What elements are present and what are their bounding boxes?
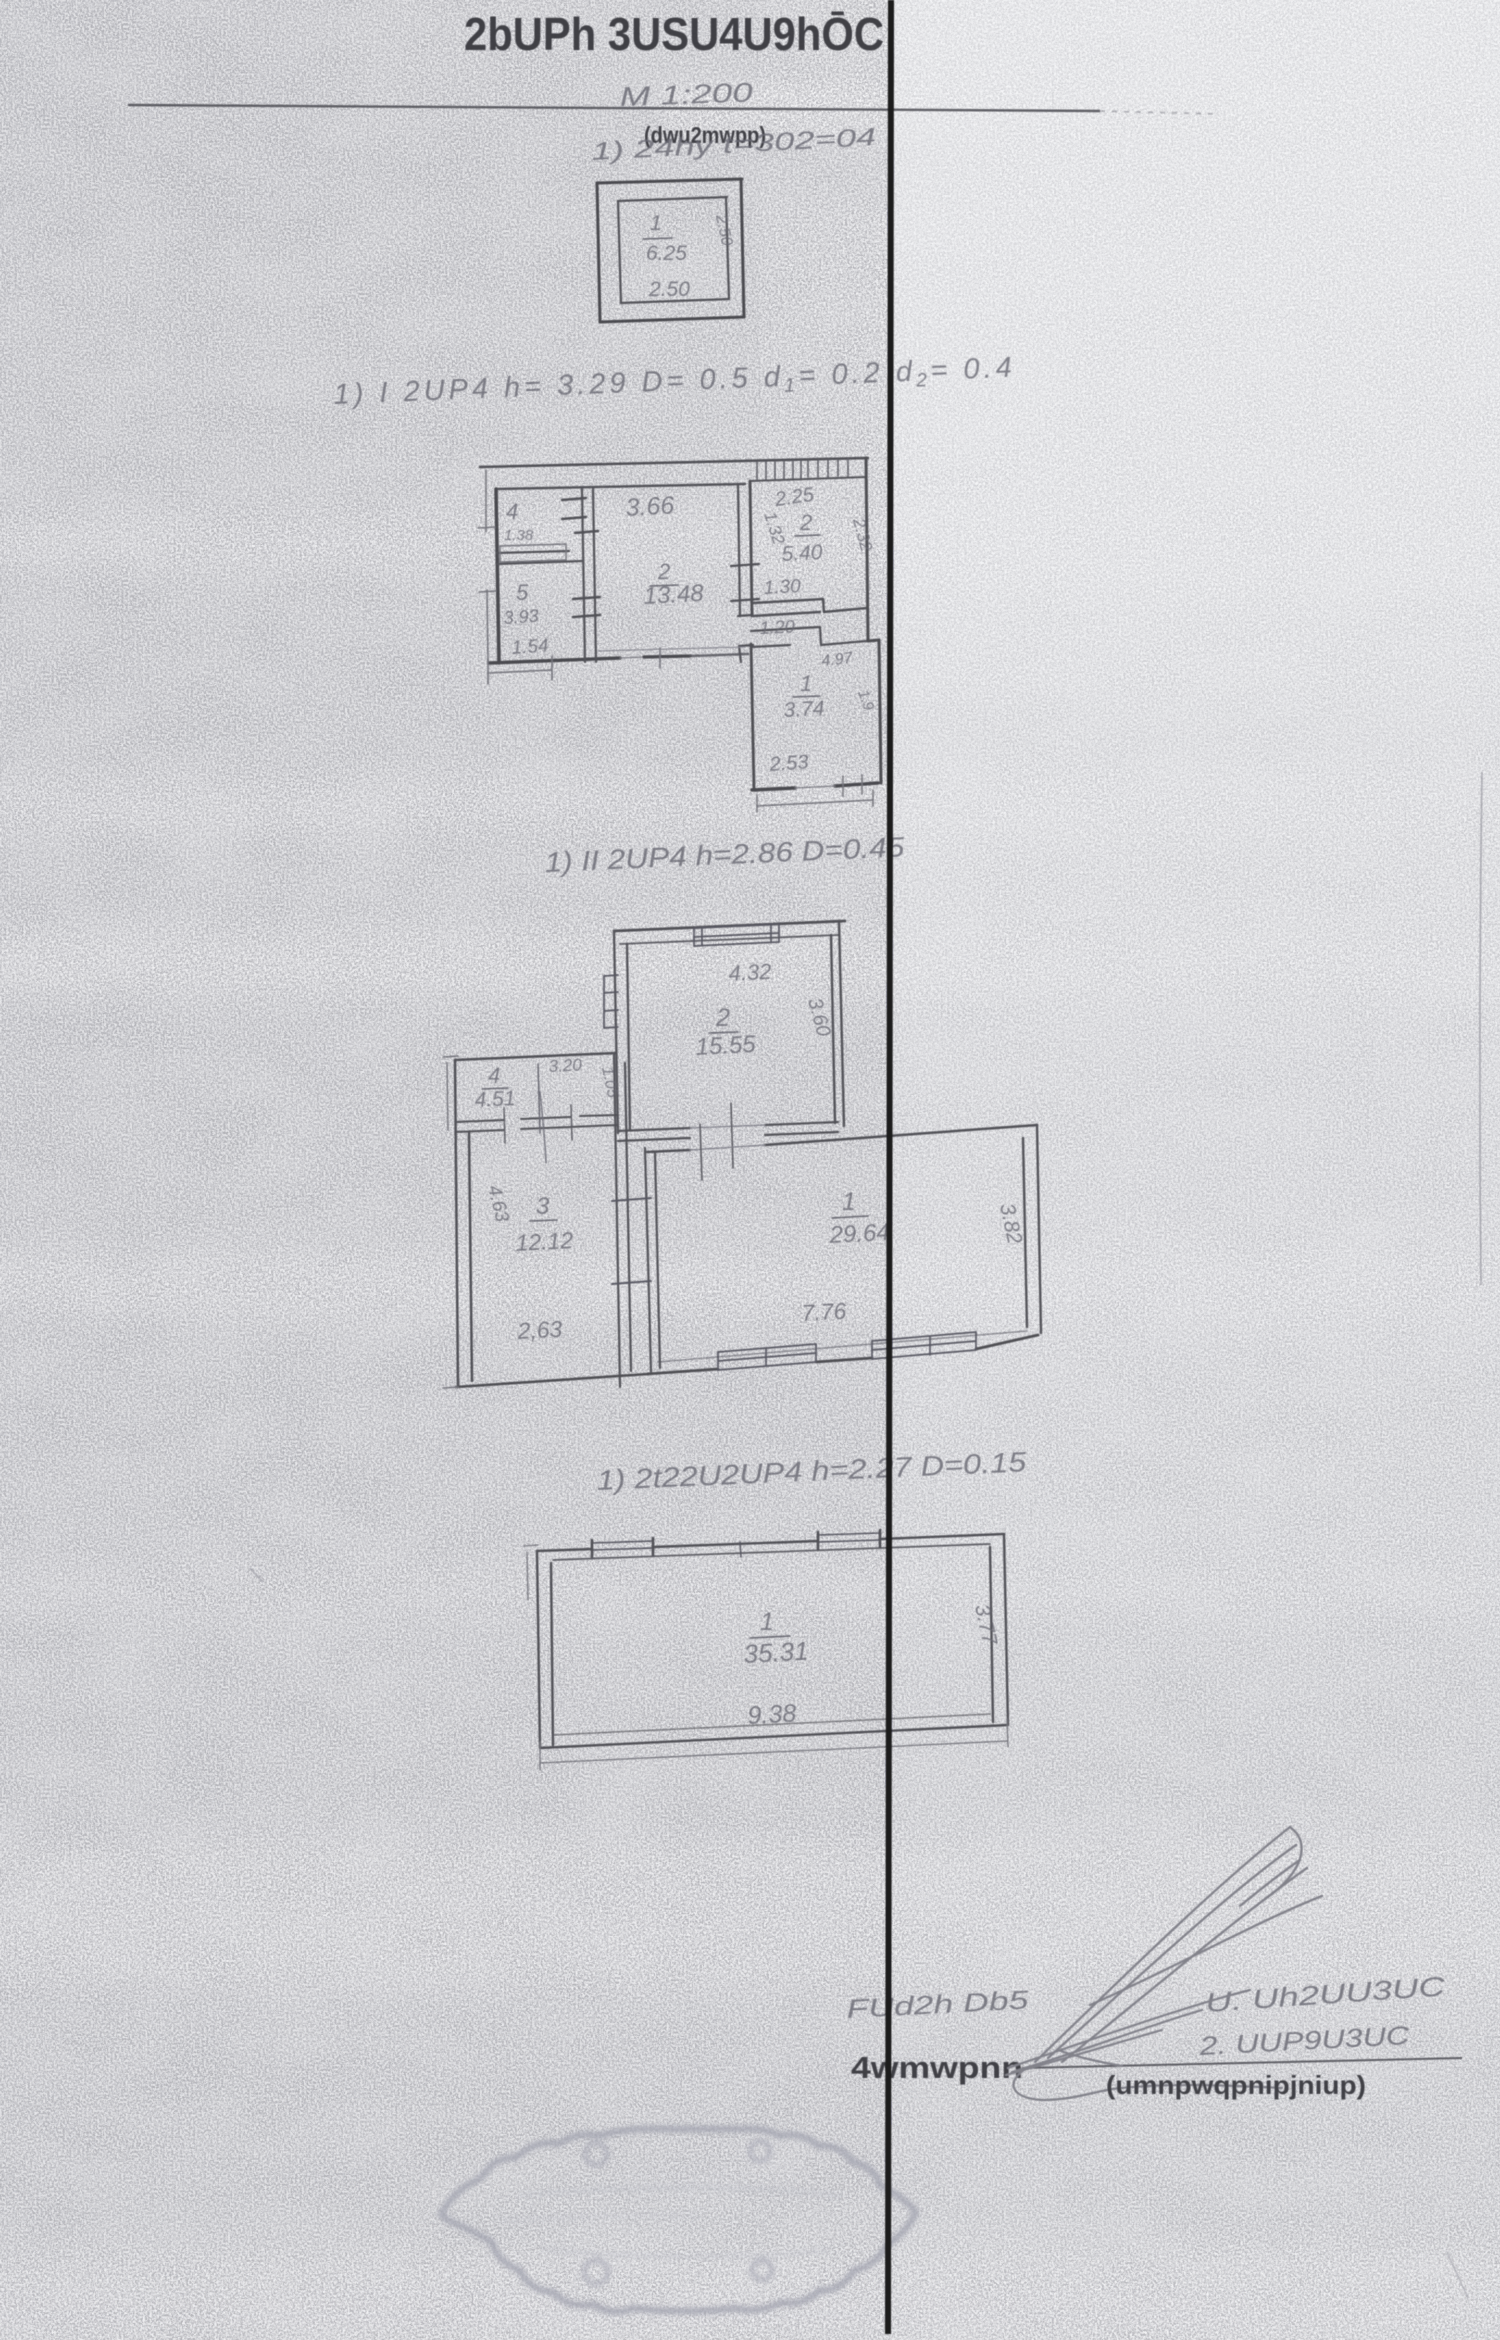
svg-text:1.38: 1.38 xyxy=(504,527,534,544)
svg-text:4wmwpnn: 4wmwpnn xyxy=(851,2050,1023,2085)
svg-text:35.31: 35.31 xyxy=(743,1636,810,1669)
svg-text:1: 1 xyxy=(842,1188,856,1216)
svg-text:3.20: 3.20 xyxy=(548,1055,583,1076)
svg-text:2.53: 2.53 xyxy=(768,751,809,776)
svg-text:(umnpwqpnipjniup): (umnpwqpnipjniup) xyxy=(1106,2070,1366,2100)
svg-text:2,63: 2,63 xyxy=(516,1316,563,1344)
svg-text:12.12: 12.12 xyxy=(515,1227,574,1256)
svg-text:29.64: 29.64 xyxy=(828,1219,890,1249)
svg-text:1.54: 1.54 xyxy=(511,635,549,659)
svg-text:1.30: 1.30 xyxy=(763,576,801,599)
svg-text:2: 2 xyxy=(657,559,670,584)
svg-text:4: 4 xyxy=(488,1063,500,1088)
svg-text:M 1:200: M 1:200 xyxy=(619,77,753,112)
svg-text:1: 1 xyxy=(650,212,662,235)
svg-text:9.38: 9.38 xyxy=(747,1699,797,1730)
svg-text:4.32: 4.32 xyxy=(728,959,772,986)
svg-text:3: 3 xyxy=(536,1193,550,1220)
svg-text:4.51: 4.51 xyxy=(474,1087,516,1112)
svg-text:1: 1 xyxy=(800,671,812,696)
svg-text:3.74: 3.74 xyxy=(783,697,825,722)
svg-text:2: 2 xyxy=(715,1004,730,1032)
svg-text:2bUPh 3USU4U9hŌC: 2bUPh 3USU4U9hŌC xyxy=(464,8,884,60)
svg-text:1: 1 xyxy=(760,1608,774,1636)
svg-text:4.97: 4.97 xyxy=(821,650,855,670)
svg-text:6.25: 6.25 xyxy=(646,242,687,265)
svg-text:1.20: 1.20 xyxy=(759,616,795,638)
svg-text:5.40: 5.40 xyxy=(781,541,823,566)
svg-text:3.66: 3.66 xyxy=(625,491,675,522)
svg-text:13.48: 13.48 xyxy=(643,580,705,610)
svg-text:2: 2 xyxy=(799,510,812,535)
svg-text:3.93: 3.93 xyxy=(503,606,539,628)
svg-text:2.50: 2.50 xyxy=(648,278,690,301)
svg-text:4: 4 xyxy=(506,499,518,524)
svg-text:5: 5 xyxy=(516,580,529,605)
svg-text:15.55: 15.55 xyxy=(695,1031,757,1061)
svg-text:7.76: 7.76 xyxy=(801,1298,847,1326)
